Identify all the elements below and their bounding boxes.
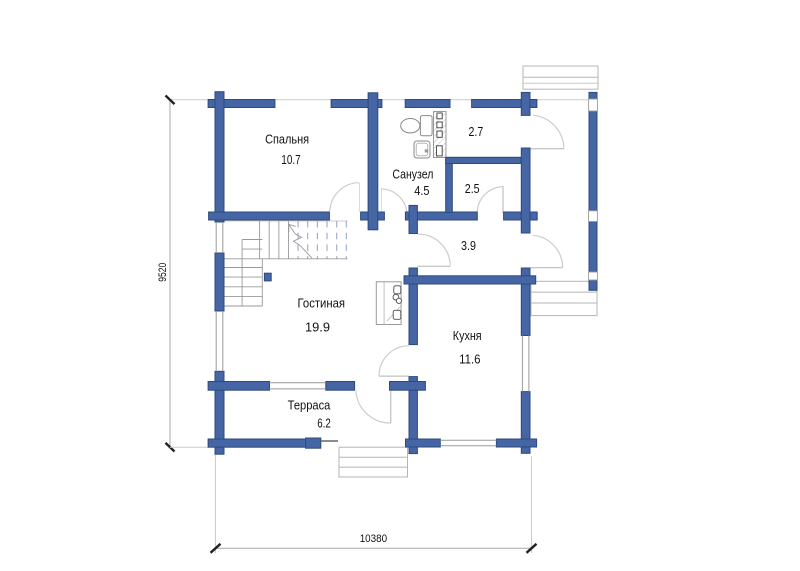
svg-text:11.6: 11.6	[459, 351, 480, 366]
svg-text:Санузел: Санузел	[392, 166, 433, 181]
svg-text:2.7: 2.7	[469, 124, 484, 139]
svg-text:2.5: 2.5	[465, 181, 480, 196]
svg-text:4.5: 4.5	[414, 183, 429, 198]
svg-text:6.2: 6.2	[317, 416, 331, 431]
svg-text:19.9: 19.9	[305, 319, 330, 334]
svg-text:Гостиная: Гостиная	[298, 295, 346, 310]
svg-text:Кухня: Кухня	[453, 328, 482, 343]
svg-text:Спальня: Спальня	[265, 132, 309, 147]
svg-text:10.7: 10.7	[281, 152, 300, 167]
svg-text:9520: 9520	[157, 263, 169, 282]
svg-text:10380: 10380	[360, 533, 387, 545]
svg-text:3.9: 3.9	[461, 238, 476, 253]
svg-text:Терраса: Терраса	[288, 397, 331, 412]
